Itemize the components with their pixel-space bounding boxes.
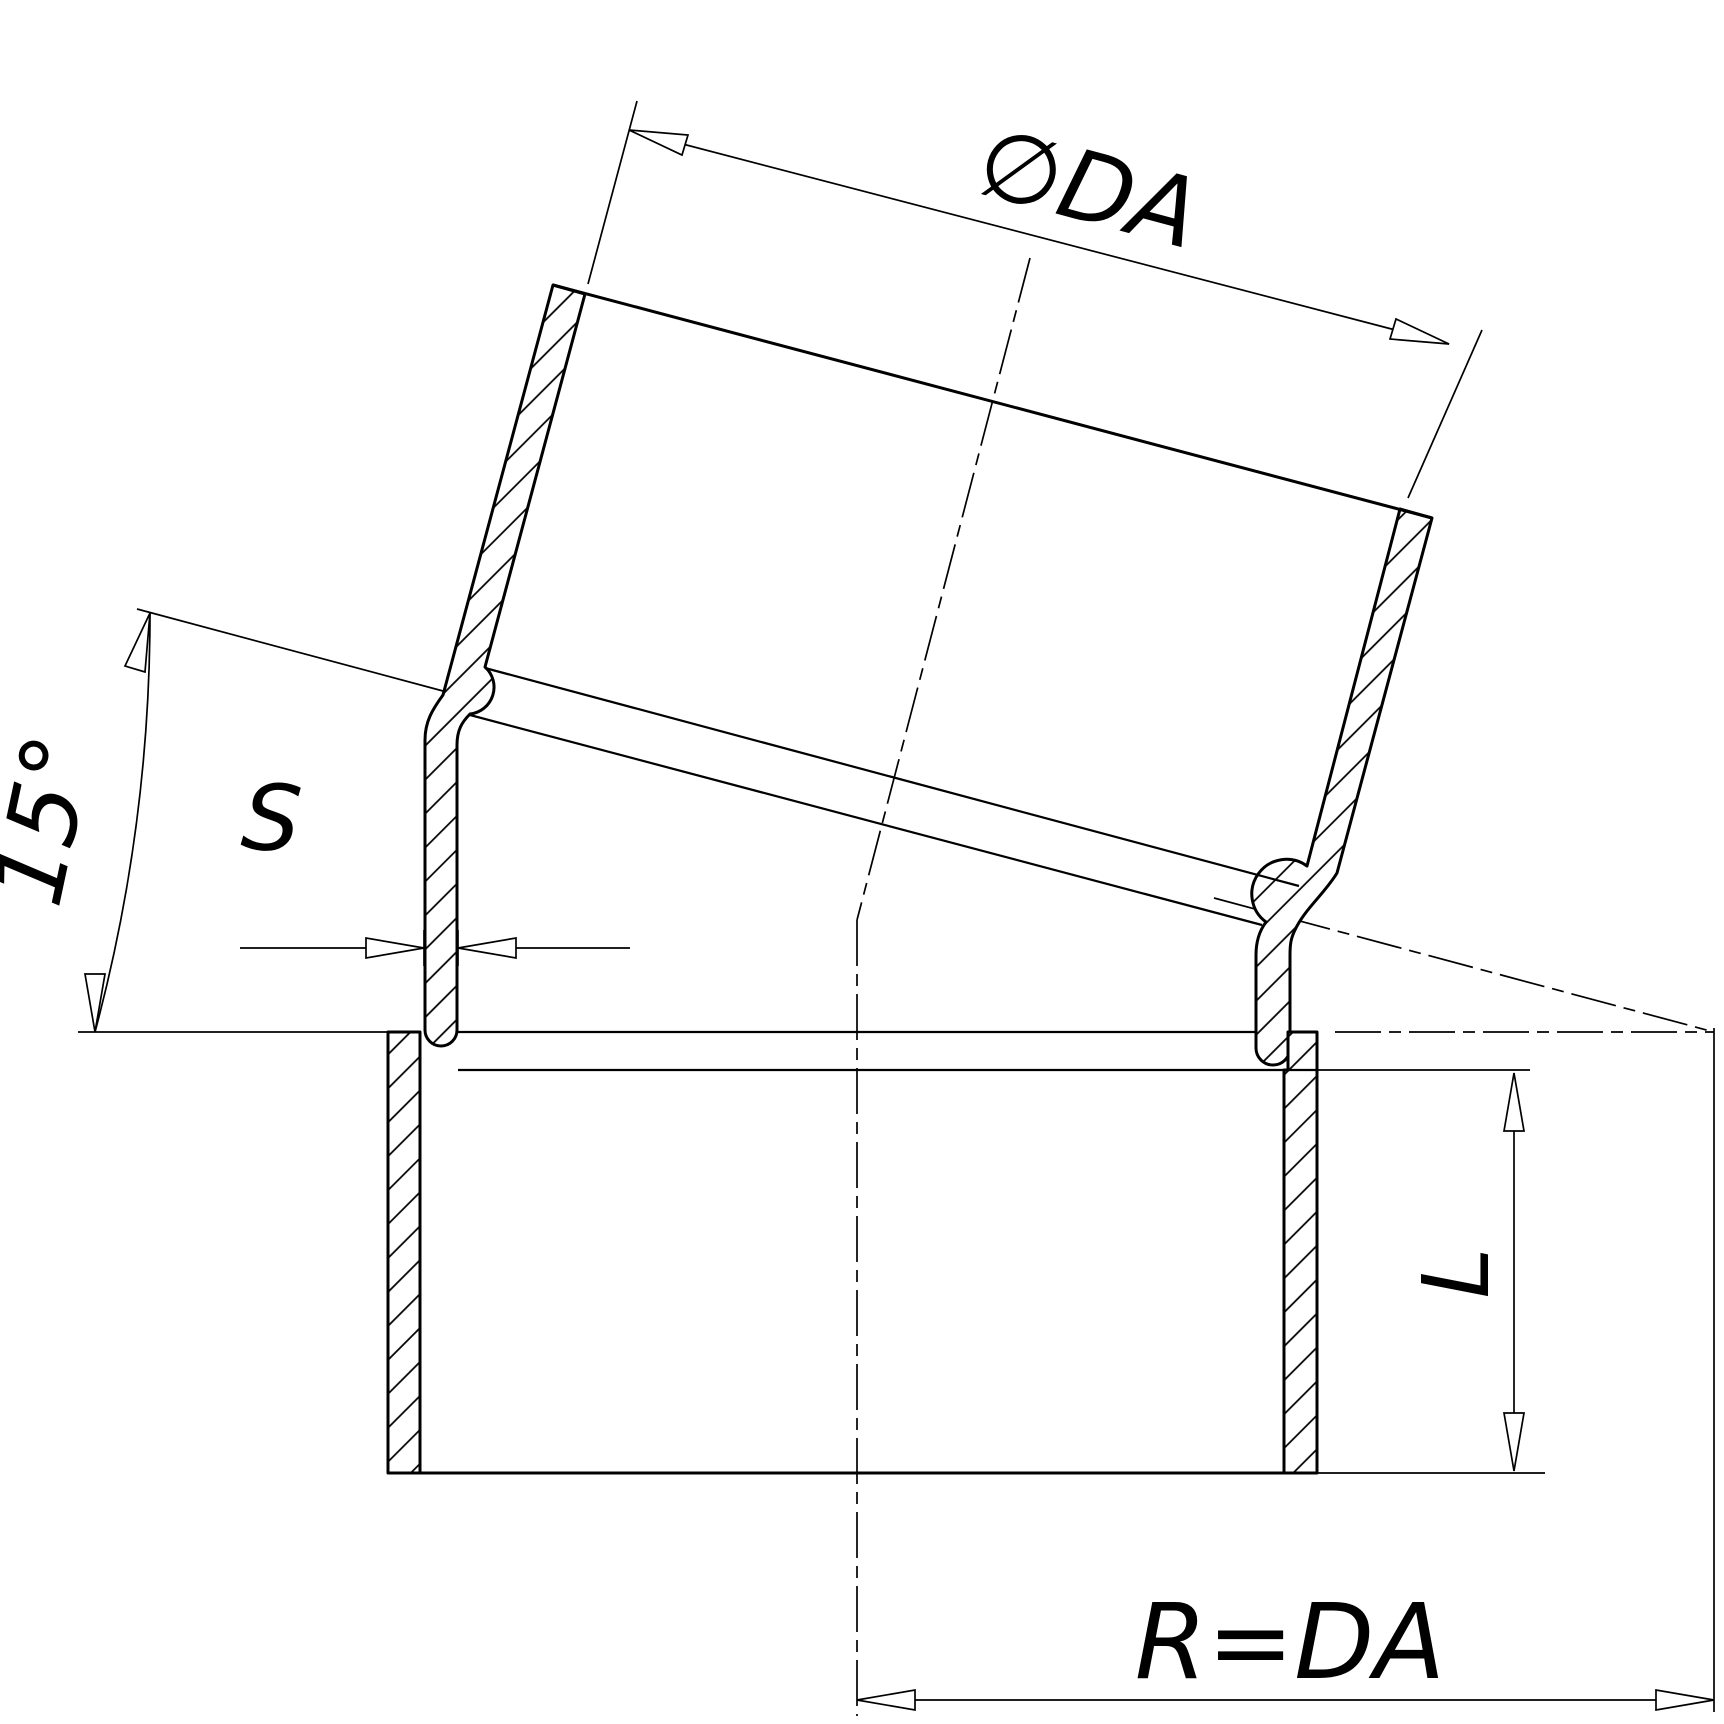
angle-slanted-ray [137,609,443,691]
bead-lower-line [470,715,1262,925]
diameter-ext-line-right [1408,330,1482,498]
pipe-elbow-technical-drawing: ∅DA 15° S L R=DA [0,0,1724,1724]
radius-arrow-left [857,1690,915,1710]
diameter-label: ∅DA [966,105,1211,271]
diameter-arrow-right [1390,319,1449,344]
thickness-label: S [238,763,306,875]
angle-arc [95,613,150,1032]
bead-upper-line [485,668,1299,886]
length-arrow-bottom [1504,1413,1524,1471]
upper-pipe-top-edge [553,285,1432,518]
socket-right-wall [1284,1032,1317,1473]
length-label: L [1403,1247,1510,1298]
radius-label: R=DA [1135,1581,1446,1703]
socket-left-wall [388,1032,420,1473]
diameter-arrow-left [629,130,688,155]
tilted-axis-centerline [857,258,1030,920]
angle-label: 15° [0,725,116,915]
thickness-arrow-right [458,938,516,958]
upper-pipe-right-wall [1252,509,1432,1065]
diameter-ext-line-left [588,101,637,284]
length-arrow-top [1504,1073,1524,1131]
dimension-length: L [1317,1070,1545,1473]
thickness-arrow-left [366,938,424,958]
pipe-body [388,285,1432,1473]
dimension-angle: 15° [0,609,443,1032]
radius-arrow-right [1656,1690,1714,1710]
upper-pipe-left-wall [425,285,585,1046]
angle-arrow-top [125,613,150,672]
elbow-section-view: ∅DA 15° S L R=DA [0,0,1724,1724]
dimension-diameter: ∅DA [588,101,1482,498]
